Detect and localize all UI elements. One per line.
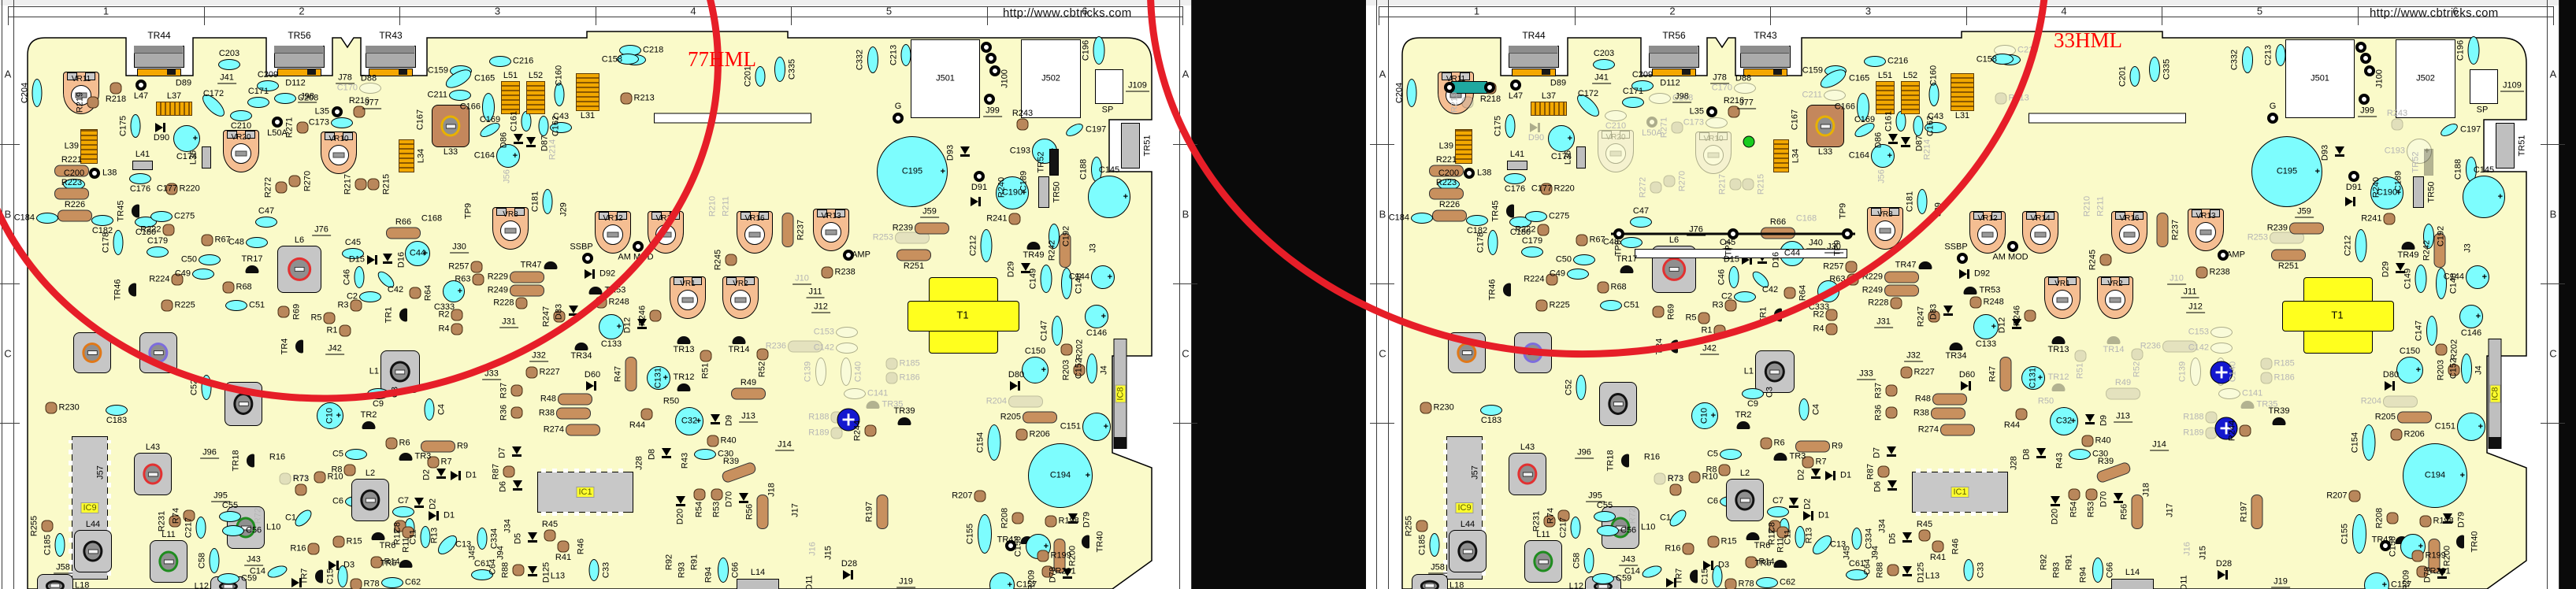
component-label: D12: [1999, 317, 2007, 333]
component-label: TR52: [1037, 152, 1046, 173]
diode-bar: [1943, 313, 1953, 316]
connector-label: J502: [2416, 75, 2435, 83]
component-c216: [1864, 56, 1886, 67]
component-label: R4: [1813, 325, 1824, 334]
component-label: L43: [1520, 443, 1535, 452]
component-c204: [1407, 79, 1417, 107]
component-label: R205: [2375, 413, 2396, 422]
component-label: R237: [796, 220, 805, 240]
component-label: C131: [2029, 368, 2038, 388]
component-label: C46: [1717, 269, 1726, 285]
component-tr14: [2107, 336, 2121, 344]
component-label: D5: [1889, 533, 1898, 544]
component-c146: +: [2459, 305, 2483, 328]
diode-bar: [1901, 145, 1910, 147]
component-c14: [1641, 563, 1664, 580]
component-label: L36: [1565, 150, 1573, 165]
trim-label: VR8: [1868, 210, 1902, 219]
component-r45: [1919, 530, 1931, 542]
component-label: C210: [1605, 122, 1626, 131]
can-core: [1517, 463, 1537, 484]
component-label: R7: [441, 458, 452, 467]
component-label: R63: [1829, 276, 1845, 284]
component-label: D91: [2346, 183, 2362, 192]
component-tr51: [2496, 123, 2515, 169]
component-label: R206: [2404, 431, 2425, 439]
component-label: J18: [2143, 483, 2151, 497]
component-r226: [1432, 210, 1467, 222]
diode-bar: [2036, 456, 2046, 458]
component-label: TR3: [1790, 453, 1806, 461]
component-r230: [1420, 402, 1432, 414]
component-label: TR34: [571, 352, 592, 361]
component-label: TR34: [1946, 352, 1967, 361]
component-label: R6: [1774, 439, 1785, 448]
component-label: SSBP: [570, 243, 592, 252]
component-c334: [1852, 528, 1862, 550]
diode-triangle: [1530, 123, 1538, 132]
trim-label: VR10: [1696, 135, 1731, 143]
component-label: D80: [2383, 371, 2399, 380]
component-label: R92: [2040, 554, 2049, 570]
component-label: L35: [315, 108, 329, 117]
component-label: R272: [264, 177, 273, 198]
component-label: J3: [2464, 243, 2473, 253]
component-c150: +: [2396, 357, 2423, 383]
component-label: J10: [2167, 275, 2186, 285]
component-c208: [1649, 93, 1671, 104]
component-label: L33: [1818, 148, 1832, 157]
component-c141: [2218, 388, 2240, 399]
component-d1: [1803, 511, 1816, 520]
component-label: TR35: [882, 401, 904, 409]
component-label: TR45: [1491, 201, 1500, 222]
component-label: R16: [290, 545, 306, 554]
component-label: D83: [1930, 304, 1939, 320]
trim-wiper: [2052, 290, 2073, 310]
component-label: R53: [2088, 501, 2096, 517]
component-vr10: VR10: [1695, 132, 1732, 174]
component-label: L37: [167, 92, 181, 101]
component-c149: [2415, 265, 2427, 293]
component-label: TR18: [1606, 450, 1615, 472]
component-label: J57: [97, 465, 106, 480]
component-c50: [1573, 254, 1595, 265]
can-slot: [1598, 584, 1609, 589]
component-c182: [1466, 215, 1488, 226]
transistor-pad-segment: [1682, 69, 1691, 75]
component-r68: [1598, 282, 1609, 294]
component-r213: [1995, 93, 2007, 105]
component-G: [1743, 136, 1755, 148]
component-label: C1: [1660, 514, 1671, 523]
component-label: R88: [501, 562, 510, 578]
component-c176: [1504, 173, 1526, 184]
component-label: D16: [398, 252, 406, 268]
component-r69: [1653, 306, 1665, 318]
component-c332: [2242, 46, 2253, 73]
component-label: C59: [241, 575, 257, 583]
component-label: TR2: [361, 411, 377, 420]
component-tr50: [2413, 176, 2424, 208]
component-label: R69: [1667, 304, 1676, 320]
component-label: L34: [418, 149, 426, 163]
component-label: C173: [1683, 119, 1704, 128]
component-label: R7: [1816, 458, 1827, 467]
component-label: C156: [1015, 536, 1023, 557]
component-c142: [2210, 343, 2233, 354]
component-r73: [1670, 484, 1682, 496]
component-label: R94: [705, 567, 714, 583]
diode-triangle: [1887, 446, 1896, 454]
component-label: L18: [1449, 582, 1464, 589]
component-label: R210: [709, 196, 718, 217]
component-label: R226: [1439, 201, 1460, 209]
component-label: C10: [326, 408, 335, 424]
component-label: R218: [1480, 95, 1501, 104]
component-label: R231: [158, 511, 166, 532]
component-label: R9: [1832, 443, 1843, 451]
component-label: D9: [726, 415, 734, 426]
component-label: L18: [75, 582, 89, 589]
component-label: R223: [61, 179, 82, 187]
component-r274: [1940, 424, 1975, 436]
component-label: R2: [438, 311, 449, 320]
component-label: R249: [488, 287, 508, 295]
diode-bar: [1789, 506, 1798, 508]
trim-wiper: [2119, 224, 2140, 245]
component-label: TR45: [117, 201, 125, 222]
component-l52: [1901, 81, 1920, 114]
component-label: C142: [2188, 344, 2209, 353]
component-label: R56: [745, 504, 754, 520]
component-label: R242: [2422, 240, 2431, 261]
component-label: D9: [2100, 415, 2109, 426]
component-label: R211: [722, 196, 731, 216]
component-d86: [1888, 134, 1898, 146]
component-label: L10: [1641, 524, 1655, 532]
trim-slot: [1708, 152, 1720, 157]
component-c154: [2363, 424, 2376, 461]
component-label: C212: [969, 235, 978, 256]
trim-slot: [1880, 228, 1891, 233]
board-caption-left: 77HML: [688, 47, 756, 72]
component-c151: +: [2457, 413, 2485, 441]
component-label: J41: [1592, 74, 1611, 84]
component-label: AMP: [2226, 251, 2245, 260]
diode-triangle: [2114, 493, 2123, 501]
component-label: C152: [1075, 358, 1084, 379]
component-r188: [2206, 412, 2218, 424]
component-label: C66: [732, 562, 741, 578]
component-tr46: [1503, 283, 1511, 297]
component-d7: [1887, 446, 1896, 459]
component-r205: [2397, 412, 2432, 424]
watermark-url-right: http://www.cbtricks.com: [2370, 6, 2499, 20]
component-label: L51: [503, 72, 518, 80]
component-label: R188: [2183, 413, 2203, 422]
component-label: R244: [2228, 420, 2236, 441]
component-vr20: VR20: [1598, 130, 1634, 172]
component-j109: [2470, 69, 2498, 104]
component-label: L50A: [267, 129, 288, 138]
can-core: [1523, 343, 1542, 363]
component-label: C4: [1812, 404, 1821, 415]
component-c5: [1720, 449, 1742, 460]
component-label: C64: [1864, 559, 1873, 575]
component-label: D79: [1083, 512, 1092, 528]
component-label: D93: [2322, 145, 2330, 161]
component-label: C164: [1849, 152, 1869, 161]
component-j502: J502: [2396, 39, 2455, 118]
component-label: C141: [867, 390, 888, 398]
component-label: R16: [1665, 545, 1680, 554]
component-l18: [1412, 574, 1448, 589]
component-label: C42: [388, 286, 403, 294]
trim-slot: [2057, 297, 2069, 302]
component-label: L2: [1740, 469, 1750, 478]
component-label: R94: [2080, 567, 2088, 583]
trim-wiper: [1605, 143, 1626, 164]
component-label: R15: [1721, 538, 1737, 546]
can-slot: [1613, 402, 1623, 406]
component-label: D2: [1804, 498, 1813, 509]
component-label: C11: [1784, 529, 1792, 544]
component-label: C332: [856, 50, 865, 70]
component-label: C33: [1977, 562, 1985, 578]
component-ic8: IC8: [2489, 339, 2502, 449]
component-label: L11: [1536, 531, 1550, 539]
component-d2: [1811, 469, 1821, 481]
component-label: R13: [431, 528, 440, 543]
component-r3: [1725, 300, 1737, 312]
component-label: J59: [920, 208, 939, 218]
component-label: C275: [1549, 213, 1569, 221]
component-label: R188: [808, 413, 829, 422]
component-label: C181: [1906, 191, 1914, 212]
component-label: J14: [2150, 441, 2169, 451]
component-label: TP9: [1834, 240, 1843, 256]
component-label: C201: [2118, 66, 2127, 87]
component-label: J30: [450, 243, 469, 254]
component-r244: [2240, 425, 2251, 437]
component-label: R87: [1866, 464, 1875, 480]
component-c48: [1620, 237, 1642, 248]
component-label: D88: [1735, 75, 1751, 83]
can-core: [1608, 393, 1628, 415]
component-label: C179: [1522, 237, 1542, 246]
component-c33: [1964, 559, 1974, 581]
component-label: J43: [244, 556, 263, 566]
component-label: G: [895, 102, 902, 111]
component-tr47: [1919, 261, 1932, 269]
component-d: [2007, 241, 2018, 252]
component-label: D83: [555, 304, 564, 320]
component-c47: [1630, 217, 1652, 228]
component-label: R272: [1639, 177, 1647, 198]
component-label: L12: [195, 583, 209, 589]
component-label: C165: [474, 75, 495, 83]
component-label: C141: [2242, 390, 2262, 398]
component-r245: [2100, 254, 2112, 266]
component-label: R217: [343, 174, 352, 194]
component-label: C133: [601, 340, 622, 349]
component-label: J98: [298, 93, 317, 103]
plus-mark: +: [1887, 151, 1892, 161]
component-label: TR50: [2428, 182, 2437, 203]
component-d1: [1825, 471, 1838, 480]
component-l37: [1531, 102, 1567, 116]
component-label: D8: [648, 449, 657, 460]
component-label: TR49: [2398, 251, 2419, 260]
component-label: D60: [585, 371, 600, 380]
diode-bar: [2225, 570, 2228, 580]
component-label: D1: [1818, 512, 1829, 520]
component-label: C146: [1086, 329, 1107, 338]
component-r215: [1743, 179, 1754, 191]
component-label: C203: [219, 50, 239, 58]
component-label: R197: [2240, 502, 2248, 522]
trim-wiper: [2105, 290, 2125, 310]
component-r47: [2000, 357, 2012, 391]
component-label: C52: [190, 380, 199, 395]
diode-triangle: [1803, 511, 1811, 520]
component-label: C50: [1556, 256, 1572, 265]
component-label: C161: [510, 111, 518, 132]
ic-label: IC8: [2489, 384, 2500, 402]
component-label: D29: [2382, 261, 2391, 277]
component-label: J100: [2376, 69, 2385, 88]
component-label: C48: [228, 239, 244, 247]
component-r5: [1698, 313, 1710, 324]
component-label: D1: [1840, 472, 1851, 480]
component-tr35: [2241, 401, 2255, 409]
component-label: R222: [140, 226, 161, 235]
component-label: C32: [681, 417, 697, 426]
component-label: R204: [986, 398, 1007, 406]
trim-wiper: [2196, 222, 2216, 243]
component-label: C147: [2415, 320, 2424, 341]
component-label: L35: [1690, 108, 1704, 117]
component-r223: [1429, 188, 1464, 200]
component-label: D2: [423, 469, 432, 480]
component-label: J96: [1575, 449, 1594, 459]
component-label: J56: [1878, 169, 1887, 183]
component-r6: [1761, 438, 1772, 450]
component-label: L47: [1509, 92, 1523, 101]
component-label: J11: [807, 288, 825, 298]
component-label: C173: [309, 119, 329, 128]
component-label: D12: [624, 317, 633, 333]
component-label: C158: [602, 56, 622, 65]
component-label: R203: [2437, 360, 2445, 380]
component-label: R5: [1685, 314, 1696, 323]
component-label: R198: [1059, 517, 1079, 526]
component-label: R253: [2248, 234, 2268, 243]
component-label: R2: [1813, 311, 1824, 320]
component-label: C168: [421, 215, 442, 224]
component-vr2: VR2: [2097, 276, 2133, 319]
component-label: L6: [1669, 236, 1679, 245]
component-label: C3: [1766, 387, 1775, 398]
component-c178: [1488, 230, 1498, 255]
component-label: C170: [1712, 84, 1732, 93]
component-label: L51: [1878, 72, 1892, 80]
component-c133: +: [1973, 314, 1999, 339]
component-label: R211: [2097, 196, 2106, 216]
component-label: L13: [1925, 572, 1939, 581]
diode-triangle: [1887, 480, 1897, 488]
component-label: R248: [1984, 298, 2004, 307]
component-tr7: [1690, 570, 1698, 583]
component-r228: [1891, 298, 1902, 309]
component-label: R13: [1806, 528, 1814, 543]
component-r197: [2251, 495, 2263, 529]
component-label: C197: [2460, 126, 2481, 135]
component-label: R1: [326, 327, 337, 335]
component-label: D28: [841, 560, 857, 569]
component-label: C43: [553, 113, 569, 121]
component-label: C62: [1780, 579, 1795, 587]
component-label: C216: [1887, 57, 1908, 66]
component-label: C5: [332, 450, 343, 459]
component-label: R39: [2098, 457, 2114, 466]
component-l50a: [1646, 117, 1657, 128]
component-label: TR18: [232, 450, 240, 472]
component-label: TP7: [1725, 240, 1734, 256]
component-label: TR5: [380, 560, 397, 569]
component-r48: [1932, 394, 1967, 406]
plus-mark: +: [2382, 580, 2387, 589]
component-l31: [1951, 73, 1974, 111]
diode-bar: [2353, 197, 2355, 206]
component-vr8: VR8: [1867, 207, 1903, 250]
component-label: C158: [1977, 56, 1997, 65]
component-label: L36: [190, 150, 199, 165]
component-label: J12: [811, 303, 830, 313]
component-c173: [1706, 117, 1728, 128]
can-core: [1735, 489, 1754, 510]
component-label: C184: [14, 214, 35, 223]
component-label: R220: [1554, 185, 1575, 194]
component-c52: [1576, 375, 1587, 400]
component-label: TR1: [384, 307, 393, 324]
component-label: TR40: [1096, 532, 1104, 553]
component-label: L44: [1461, 520, 1475, 529]
plus-mark: +: [1568, 134, 1572, 143]
component-label: R236: [2140, 343, 2161, 351]
component-r1: [1714, 325, 1726, 337]
component-label: J17: [792, 503, 800, 517]
can-core: [1662, 257, 1686, 281]
component-label: C6: [332, 498, 343, 506]
component-label: TR14: [729, 346, 750, 354]
component-label: AM MOD: [1992, 254, 2028, 262]
component-label: C155: [967, 524, 975, 544]
component-c160: [1929, 83, 1939, 106]
component-label: R74: [1546, 508, 1555, 524]
component-label: R45: [542, 520, 558, 529]
component-c196: [2468, 36, 2480, 65]
component-label: C4: [437, 404, 446, 415]
component-label: R241: [2361, 215, 2381, 224]
component-label: C52: [1565, 380, 1573, 395]
component-r44: [2016, 409, 2028, 420]
component-label: TR46: [1488, 280, 1497, 301]
board-caption-right: 33HML: [2054, 28, 2122, 53]
component-label: J15: [825, 546, 833, 560]
component-label: R238: [835, 269, 856, 277]
